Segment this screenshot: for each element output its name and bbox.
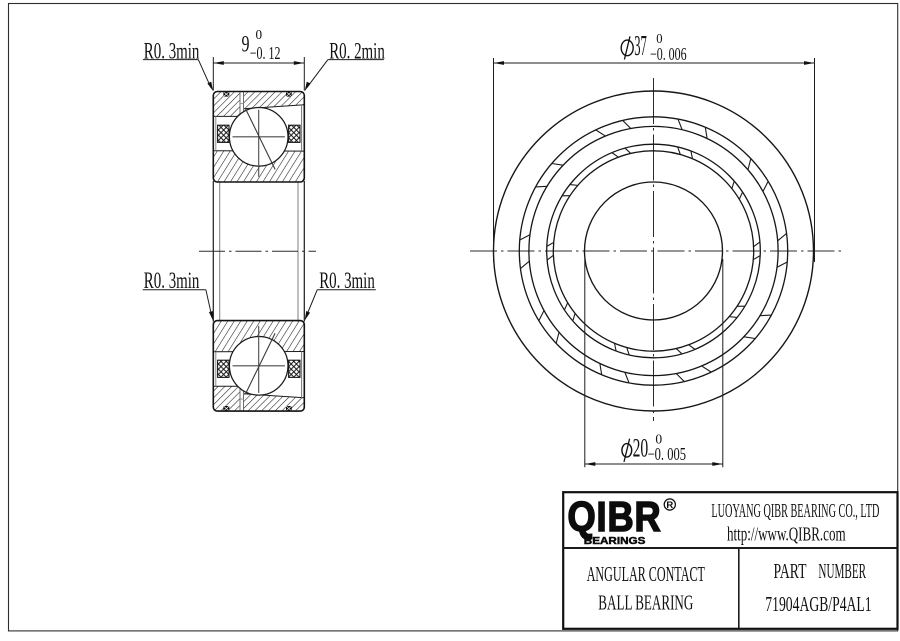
svg-text:R0. 3min: R0. 3min bbox=[319, 268, 375, 294]
svg-text:20: 20 bbox=[633, 433, 649, 463]
svg-text:QIBR: QIBR bbox=[568, 493, 662, 540]
svg-text:R0. 2min: R0. 2min bbox=[329, 39, 385, 65]
svg-text:LUOYANG QIBR BEARING CO., LTD: LUOYANG QIBR BEARING CO., LTD bbox=[711, 500, 879, 522]
svg-text:PART: PART bbox=[774, 559, 807, 583]
svg-text:ANGULAR CONTACT: ANGULAR CONTACT bbox=[587, 564, 705, 586]
svg-text:NUMBER: NUMBER bbox=[818, 559, 866, 583]
svg-text:71904AGB/P4AL1: 71904AGB/P4AL1 bbox=[765, 592, 871, 616]
svg-text:BEARINGS: BEARINGS bbox=[584, 535, 646, 547]
svg-text:BALL BEARING: BALL BEARING bbox=[598, 593, 693, 615]
svg-text:http://www.QIBR.com: http://www.QIBR.com bbox=[727, 524, 846, 546]
svg-text:−0. 006: −0. 006 bbox=[650, 44, 687, 64]
svg-text:R0. 3min: R0. 3min bbox=[144, 39, 200, 65]
svg-text:37: 37 bbox=[634, 31, 647, 62]
svg-text:−0. 12: −0. 12 bbox=[250, 43, 281, 63]
svg-text:−0. 005: −0. 005 bbox=[648, 444, 687, 464]
svg-text:9: 9 bbox=[242, 32, 250, 58]
svg-text:R: R bbox=[666, 500, 673, 511]
svg-text:0: 0 bbox=[256, 27, 263, 42]
svg-text:R0. 3min: R0. 3min bbox=[144, 268, 200, 294]
